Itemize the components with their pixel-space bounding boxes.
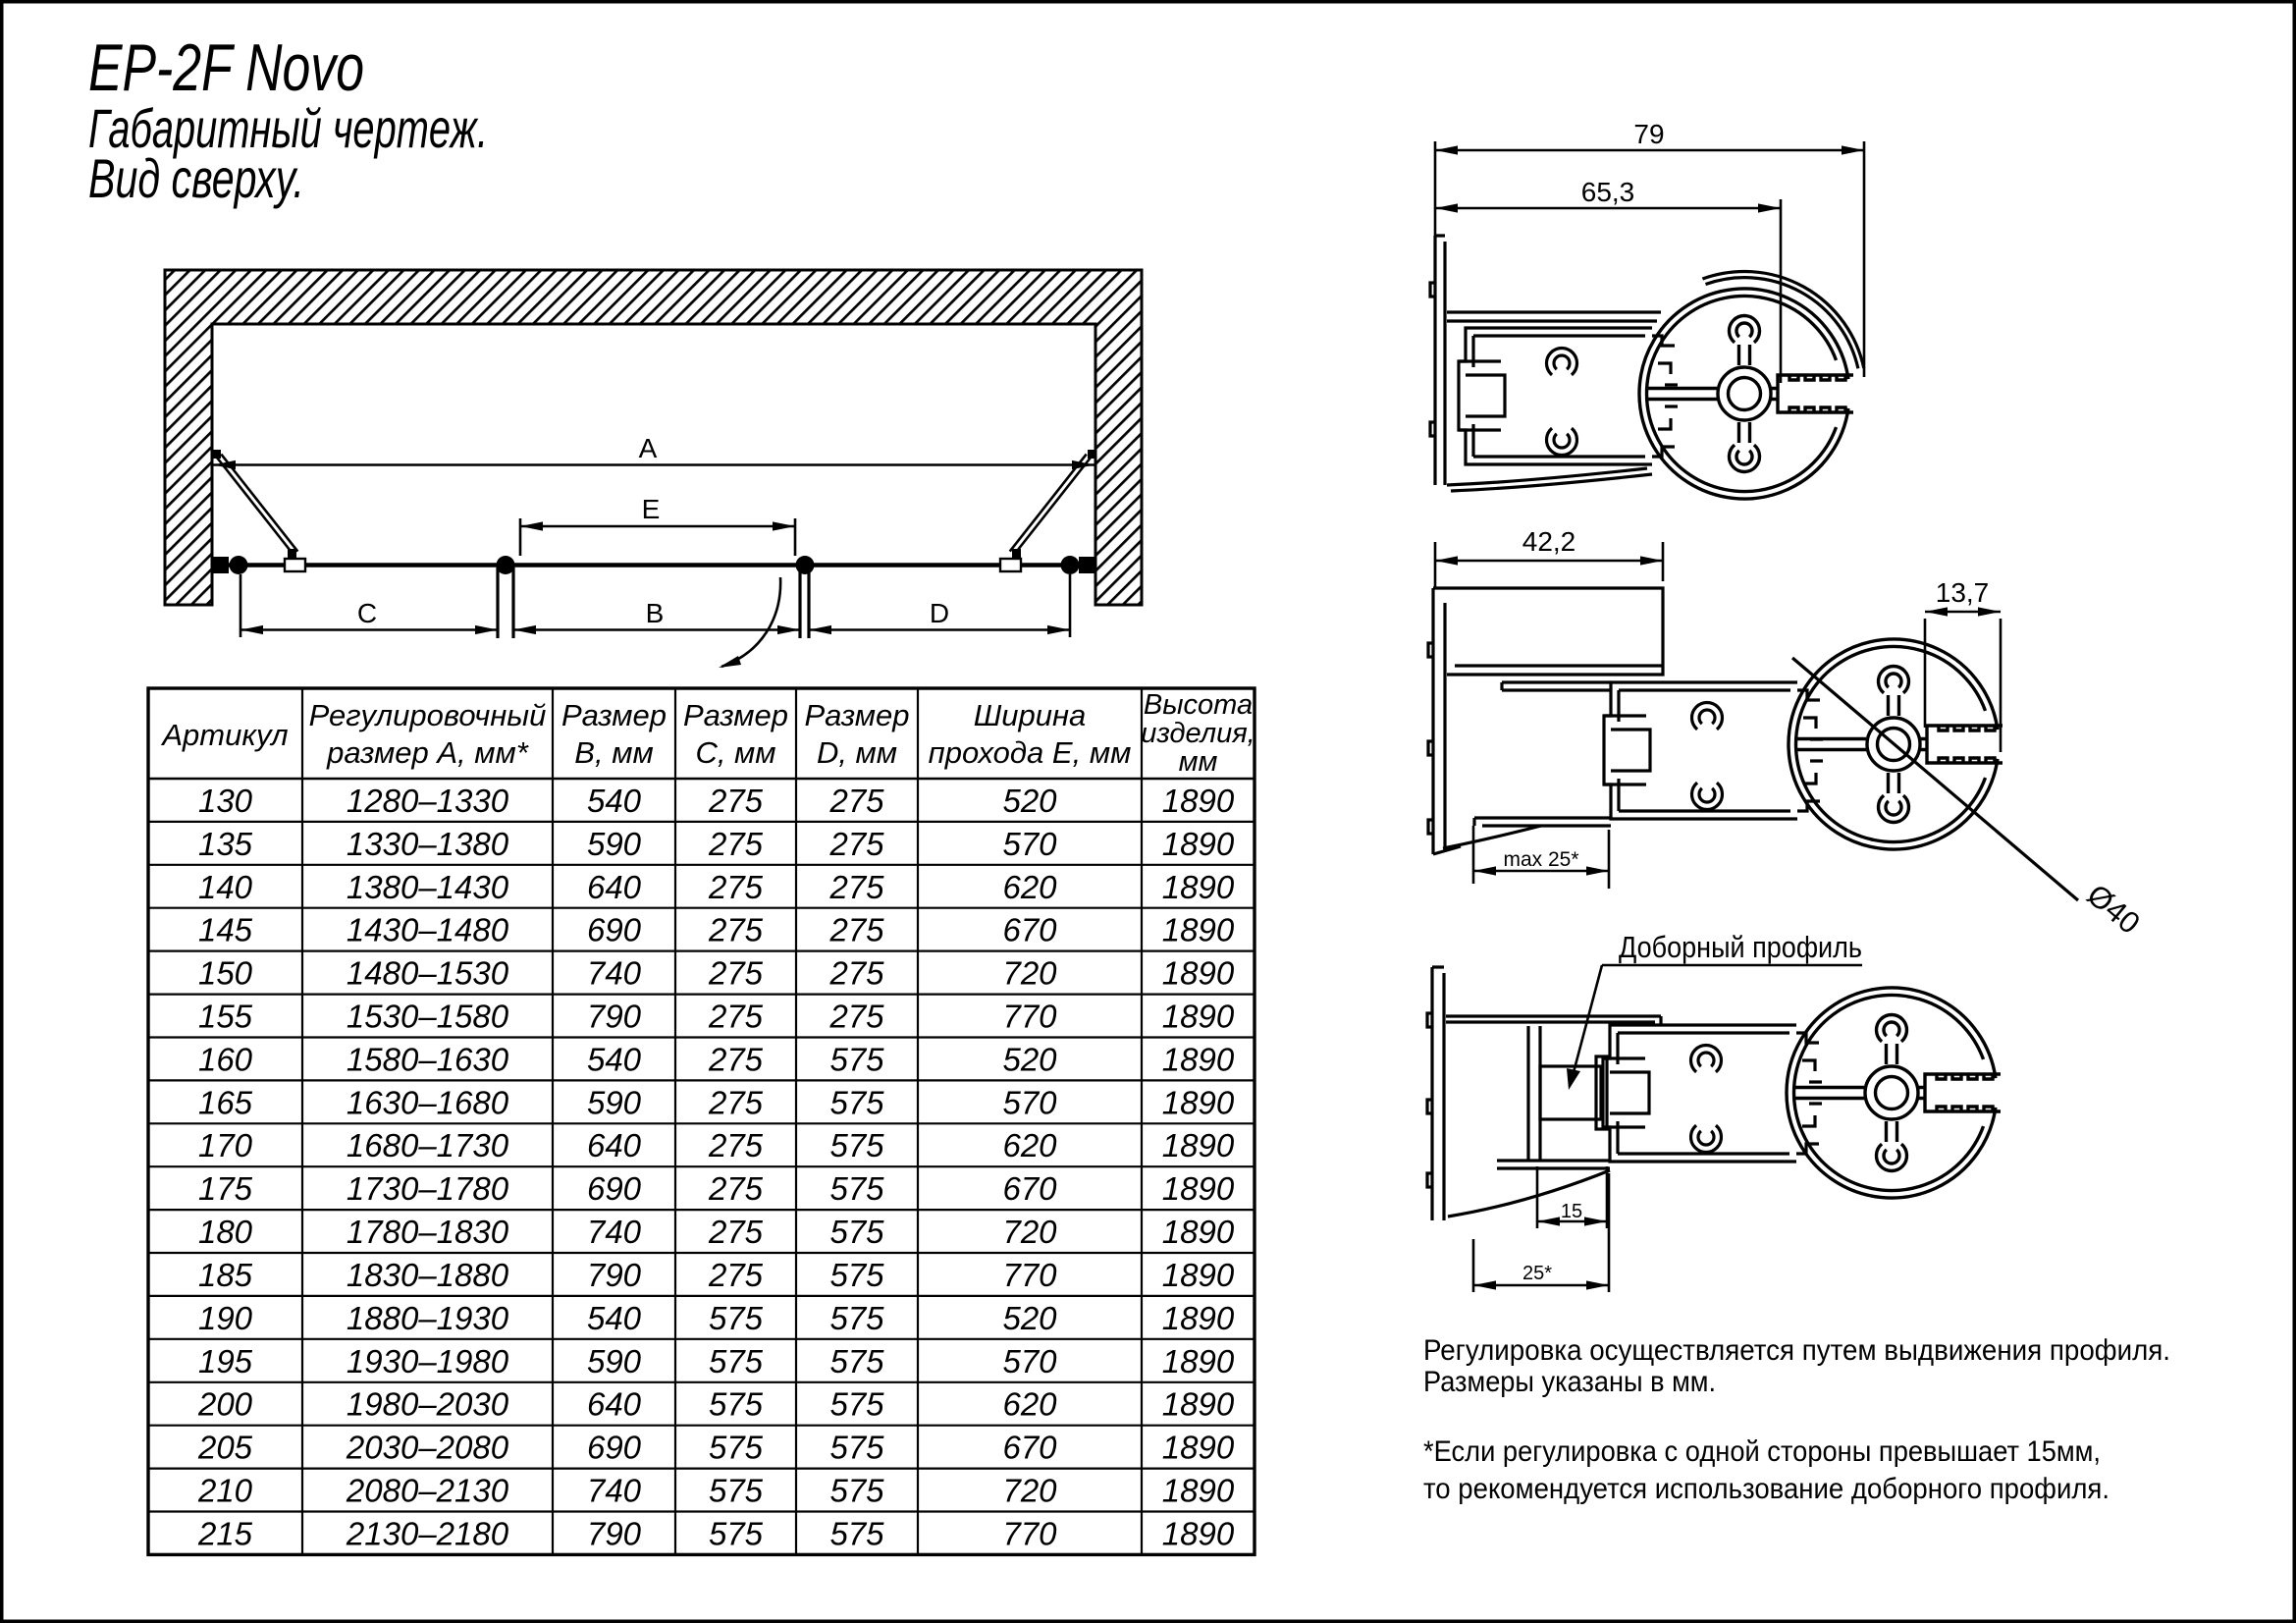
svg-text:275: 275 (708, 1257, 764, 1293)
svg-text:540: 540 (587, 783, 642, 819)
svg-text:520: 520 (1002, 783, 1057, 819)
svg-text:770: 770 (1002, 1257, 1057, 1293)
svg-text:1630–1680: 1630–1680 (347, 1084, 509, 1120)
svg-text:1890: 1890 (1162, 1343, 1235, 1380)
svg-text:2130–2180: 2130–2180 (346, 1515, 509, 1551)
svg-text:575: 575 (829, 1473, 884, 1509)
svg-text:1980–2030: 1980–2030 (347, 1386, 509, 1423)
svg-text:*Если регулировка с одной стор: *Если регулировка с одной стороны превыш… (1423, 1435, 2101, 1468)
svg-text:1890: 1890 (1162, 1214, 1235, 1250)
svg-text:165: 165 (198, 1084, 253, 1120)
svg-text:65,3: 65,3 (1581, 177, 1635, 207)
svg-text:575: 575 (829, 1084, 884, 1120)
svg-text:275: 275 (828, 869, 884, 905)
svg-text:570: 570 (1002, 1084, 1057, 1120)
svg-text:590: 590 (587, 826, 642, 862)
svg-text:140: 140 (198, 869, 253, 905)
svg-text:C: C (357, 598, 377, 628)
svg-text:1680–1730: 1680–1730 (347, 1127, 509, 1163)
svg-text:790: 790 (587, 999, 642, 1035)
svg-text:1530–1580: 1530–1580 (347, 999, 509, 1035)
svg-text:1480–1530: 1480–1530 (347, 955, 509, 992)
svg-text:275: 275 (708, 999, 764, 1035)
svg-text:Размеры указаны в мм.: Размеры указаны в мм. (1423, 1366, 1716, 1398)
svg-text:570: 570 (1002, 1343, 1057, 1380)
svg-text:160: 160 (198, 1041, 253, 1077)
svg-text:195: 195 (198, 1343, 253, 1380)
svg-text:max 25*: max 25* (1503, 848, 1578, 871)
svg-text:275: 275 (828, 999, 884, 1035)
svg-text:575: 575 (829, 1343, 884, 1380)
svg-text:1890: 1890 (1162, 1386, 1235, 1423)
svg-text:200: 200 (197, 1386, 253, 1423)
svg-text:A: A (639, 433, 658, 463)
svg-text:170: 170 (198, 1127, 253, 1163)
svg-text:1890: 1890 (1162, 1300, 1235, 1336)
svg-text:мм: мм (1179, 746, 1218, 778)
svg-text:640: 640 (587, 869, 642, 905)
svg-text:575: 575 (829, 1300, 884, 1336)
svg-text:275: 275 (708, 783, 764, 819)
svg-text:Вид сверху.: Вид сверху. (88, 147, 304, 209)
svg-text:620: 620 (1002, 1127, 1057, 1163)
svg-text:прохода Е, мм: прохода Е, мм (929, 735, 1132, 770)
svg-text:275: 275 (708, 1170, 764, 1207)
svg-text:1830–1880: 1830–1880 (347, 1257, 509, 1293)
svg-text:Размер: Размер (804, 698, 909, 732)
svg-text:1880–1930: 1880–1930 (347, 1300, 509, 1336)
svg-text:575: 575 (829, 1214, 884, 1250)
svg-text:Регулировка осуществляется пут: Регулировка осуществляется путем выдвиже… (1423, 1334, 2170, 1367)
svg-text:275: 275 (828, 826, 884, 862)
svg-text:275: 275 (708, 912, 764, 948)
svg-text:1280–1330: 1280–1330 (347, 783, 509, 819)
svg-text:1330–1380: 1330–1380 (347, 826, 509, 862)
svg-text:215: 215 (197, 1515, 253, 1551)
svg-text:1890: 1890 (1162, 999, 1235, 1035)
svg-text:13,7: 13,7 (1936, 577, 1990, 608)
svg-text:1780–1830: 1780–1830 (347, 1214, 509, 1250)
svg-text:1890: 1890 (1162, 1257, 1235, 1293)
svg-text:15: 15 (1561, 1201, 1582, 1222)
svg-text:150: 150 (198, 955, 253, 992)
svg-text:575: 575 (829, 1257, 884, 1293)
svg-text:1380–1430: 1380–1430 (347, 869, 509, 905)
svg-text:1890: 1890 (1162, 1430, 1235, 1466)
svg-text:размер А, мм*: размер А, мм* (326, 735, 529, 770)
svg-text:575: 575 (709, 1300, 764, 1336)
svg-text:740: 740 (587, 955, 642, 992)
svg-text:D, мм: D, мм (817, 735, 897, 770)
svg-text:79: 79 (1633, 119, 1664, 149)
svg-text:D: D (930, 598, 949, 628)
svg-text:Размер: Размер (561, 698, 667, 732)
svg-text:575: 575 (829, 1430, 884, 1466)
svg-text:275: 275 (828, 955, 884, 992)
svg-text:770: 770 (1002, 1515, 1057, 1551)
svg-text:В, мм: В, мм (574, 735, 653, 770)
svg-text:1430–1480: 1430–1480 (347, 912, 509, 948)
svg-text:1890: 1890 (1162, 1041, 1235, 1077)
svg-text:620: 620 (1002, 1386, 1057, 1423)
svg-text:575: 575 (829, 1170, 884, 1207)
svg-text:540: 540 (587, 1041, 642, 1077)
svg-text:640: 640 (587, 1386, 642, 1423)
svg-text:620: 620 (1002, 869, 1057, 905)
svg-text:1730–1780: 1730–1780 (347, 1170, 509, 1207)
svg-text:575: 575 (829, 1041, 884, 1077)
svg-text:740: 740 (587, 1214, 642, 1250)
svg-text:2080–2130: 2080–2130 (346, 1473, 509, 1509)
svg-text:изделия,: изделия, (1141, 718, 1255, 749)
svg-text:690: 690 (587, 1430, 642, 1466)
svg-text:1890: 1890 (1162, 1473, 1235, 1509)
svg-text:180: 180 (198, 1214, 253, 1250)
svg-text:275: 275 (708, 1041, 764, 1077)
svg-text:790: 790 (587, 1515, 642, 1551)
svg-text:Регулировочный: Регулировочный (309, 698, 547, 732)
svg-text:210: 210 (197, 1473, 253, 1509)
svg-text:1890: 1890 (1162, 912, 1235, 948)
svg-text:275: 275 (828, 783, 884, 819)
svg-text:575: 575 (709, 1386, 764, 1423)
svg-text:190: 190 (198, 1300, 253, 1336)
svg-text:130: 130 (198, 783, 253, 819)
svg-text:Размер: Размер (683, 698, 788, 732)
svg-text:275: 275 (708, 1127, 764, 1163)
svg-text:790: 790 (587, 1257, 642, 1293)
svg-text:275: 275 (708, 955, 764, 992)
svg-text:Высота: Высота (1144, 689, 1253, 721)
svg-text:575: 575 (709, 1343, 764, 1380)
svg-text:670: 670 (1002, 1170, 1057, 1207)
svg-text:575: 575 (829, 1386, 884, 1423)
svg-text:Доборный профиль: Доборный профиль (1619, 930, 1862, 964)
svg-text:B: B (646, 598, 665, 628)
svg-text:540: 540 (587, 1300, 642, 1336)
svg-text:570: 570 (1002, 826, 1057, 862)
svg-text:275: 275 (708, 1214, 764, 1250)
svg-text:275: 275 (708, 1084, 764, 1120)
svg-text:С, мм: С, мм (695, 735, 775, 770)
svg-text:E: E (642, 494, 661, 524)
svg-text:1890: 1890 (1162, 869, 1235, 905)
svg-text:155: 155 (198, 999, 253, 1035)
svg-text:то рекомендуется использование: то рекомендуется использование доборного… (1423, 1473, 2109, 1505)
svg-text:Ширина: Ширина (974, 698, 1087, 732)
svg-text:1580–1630: 1580–1630 (347, 1041, 509, 1077)
svg-text:1890: 1890 (1162, 1084, 1235, 1120)
svg-text:740: 740 (587, 1473, 642, 1509)
svg-text:720: 720 (1002, 1473, 1057, 1509)
svg-text:575: 575 (709, 1430, 764, 1466)
svg-text:1890: 1890 (1162, 783, 1235, 819)
svg-text:720: 720 (1002, 955, 1057, 992)
svg-text:135: 135 (198, 826, 253, 862)
svg-text:520: 520 (1002, 1041, 1057, 1077)
svg-text:275: 275 (828, 912, 884, 948)
svg-text:575: 575 (709, 1515, 764, 1551)
svg-text:640: 640 (587, 1127, 642, 1163)
svg-text:145: 145 (198, 912, 253, 948)
svg-text:1890: 1890 (1162, 955, 1235, 992)
svg-text:690: 690 (587, 1170, 642, 1207)
svg-text:275: 275 (708, 869, 764, 905)
svg-text:1890: 1890 (1162, 826, 1235, 862)
svg-text:590: 590 (587, 1343, 642, 1380)
svg-text:720: 720 (1002, 1214, 1057, 1250)
svg-text:670: 670 (1002, 1430, 1057, 1466)
svg-text:205: 205 (197, 1430, 253, 1466)
svg-text:175: 175 (198, 1170, 253, 1207)
svg-text:575: 575 (709, 1473, 764, 1509)
svg-text:575: 575 (829, 1515, 884, 1551)
svg-text:275: 275 (708, 826, 764, 862)
svg-text:42,2: 42,2 (1522, 526, 1576, 557)
svg-text:1930–1980: 1930–1980 (347, 1343, 509, 1380)
svg-text:25*: 25* (1522, 1263, 1552, 1284)
svg-text:770: 770 (1002, 999, 1057, 1035)
svg-text:690: 690 (587, 912, 642, 948)
svg-text:2030–2080: 2030–2080 (346, 1430, 509, 1466)
svg-text:EP-2F Novo: EP-2F Novo (88, 30, 364, 105)
svg-text:670: 670 (1002, 912, 1057, 948)
svg-text:1890: 1890 (1162, 1127, 1235, 1163)
svg-text:520: 520 (1002, 1300, 1057, 1336)
svg-text:Артикул: Артикул (160, 718, 288, 752)
svg-text:1890: 1890 (1162, 1170, 1235, 1207)
svg-text:575: 575 (829, 1127, 884, 1163)
svg-text:590: 590 (587, 1084, 642, 1120)
svg-text:1890: 1890 (1162, 1515, 1235, 1551)
svg-text:185: 185 (198, 1257, 253, 1293)
